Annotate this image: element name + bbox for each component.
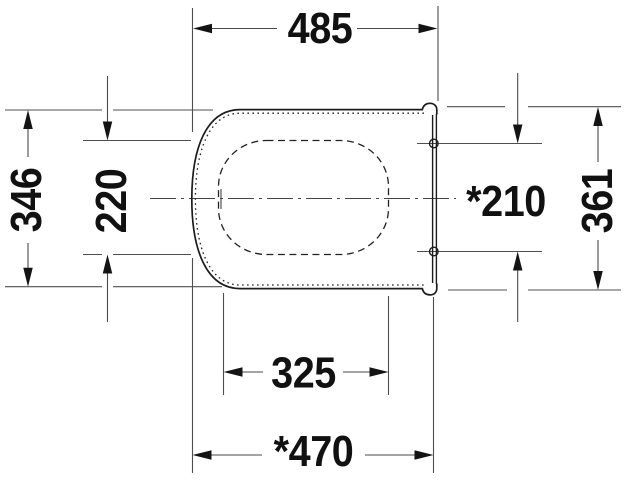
dim-label-seat-depth: 346	[1, 168, 50, 233]
dim-label-cover-depth: 361	[572, 168, 621, 233]
dim-label-opening-depth: 220	[86, 169, 135, 234]
dim-label-overall-width: 485	[288, 3, 353, 52]
dim-label-hinge-spacing: *210	[466, 176, 546, 225]
seat-opening-dashed	[219, 141, 389, 255]
dimension-drawing: 485 346 220 *210 361 325 *470	[0, 0, 624, 480]
extension-lines	[5, 6, 621, 473]
seat-hidden-edge-dotted	[195, 113, 424, 285]
technical-drawing-canvas: 485 346 220 *210 361 325 *470	[0, 0, 624, 480]
dim-label-seat-width: *470	[274, 426, 354, 475]
dim-label-inner-width: 325	[271, 348, 336, 397]
seat-outline	[192, 103, 437, 295]
